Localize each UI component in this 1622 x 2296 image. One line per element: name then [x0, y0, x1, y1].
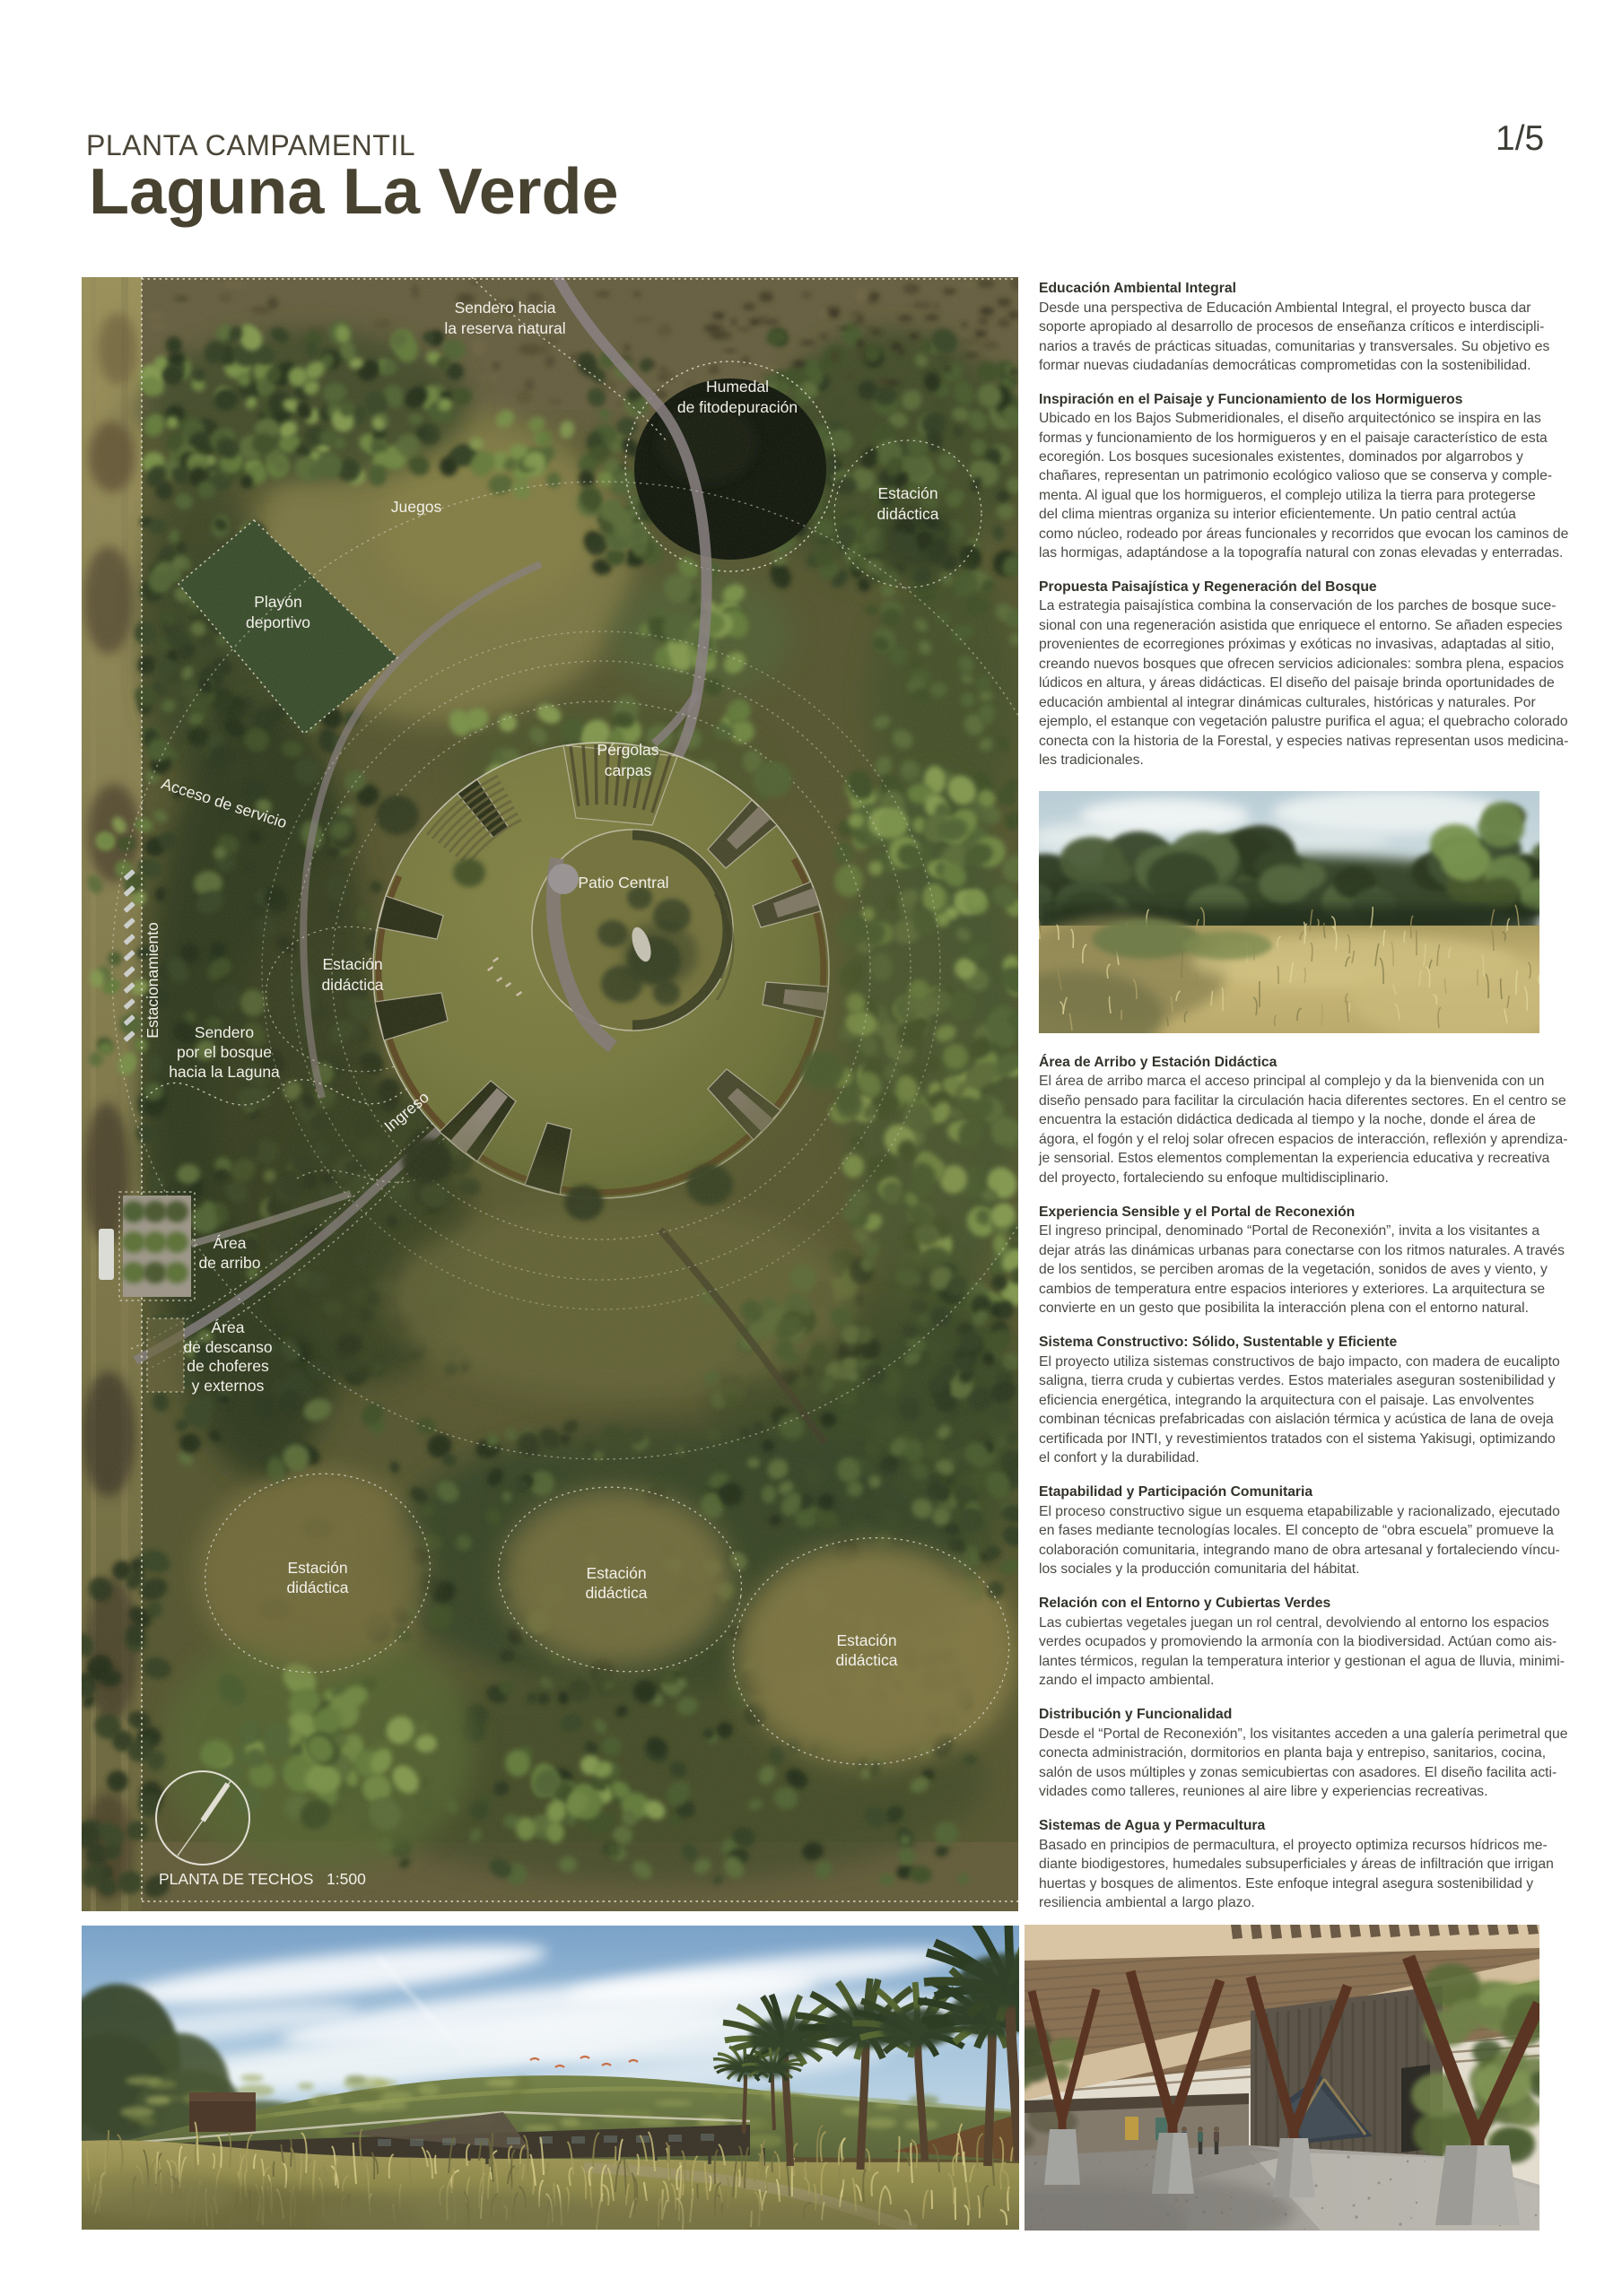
svg-text:didáctica: didáctica — [321, 976, 383, 994]
svg-text:Estación: Estación — [877, 484, 937, 502]
svg-text:Juegos: Juegos — [391, 498, 442, 516]
svg-text:Estación: Estación — [586, 1564, 646, 1582]
svg-text:Sendero: Sendero — [195, 1023, 254, 1041]
svg-text:la reserva natural: la reserva natural — [444, 319, 565, 337]
svg-text:PLANTA DE TECHOS 1:500: PLANTA DE TECHOS 1:500 — [159, 1870, 366, 1888]
svg-text:Playón: Playón — [254, 593, 302, 611]
svg-text:y externos: y externos — [192, 1377, 265, 1395]
svg-text:Estacionamiento: Estacionamiento — [144, 922, 161, 1038]
svg-text:Estación: Estación — [287, 1559, 347, 1577]
svg-text:didáctica: didáctica — [835, 1651, 897, 1669]
svg-text:de choferes: de choferes — [187, 1357, 269, 1375]
svg-text:Patio Central: Patio Central — [578, 874, 668, 891]
svg-text:didáctica: didáctica — [585, 1584, 647, 1602]
svg-text:Área: Área — [212, 1318, 245, 1336]
svg-text:Humedal: Humedal — [706, 378, 769, 396]
svg-text:Pérgolas: Pérgolas — [597, 741, 658, 759]
svg-text:deportivo: deportivo — [246, 613, 310, 631]
svg-text:hacia la Laguna: hacia la Laguna — [169, 1063, 280, 1081]
svg-text:carpas: carpas — [605, 761, 652, 779]
svg-text:Estación: Estación — [836, 1631, 896, 1649]
svg-text:Estación: Estación — [322, 955, 382, 973]
svg-text:Área: Área — [214, 1234, 247, 1252]
svg-text:didáctica: didáctica — [876, 505, 938, 523]
svg-text:didáctica: didáctica — [286, 1578, 348, 1596]
svg-text:de fitodepuración: de fitodepuración — [677, 398, 798, 416]
svg-text:por el bosque: por el bosque — [177, 1043, 272, 1061]
svg-text:de arribo: de arribo — [198, 1254, 260, 1272]
svg-text:Sendero hacia: Sendero hacia — [455, 299, 556, 317]
svg-text:de descanso: de descanso — [183, 1338, 272, 1356]
